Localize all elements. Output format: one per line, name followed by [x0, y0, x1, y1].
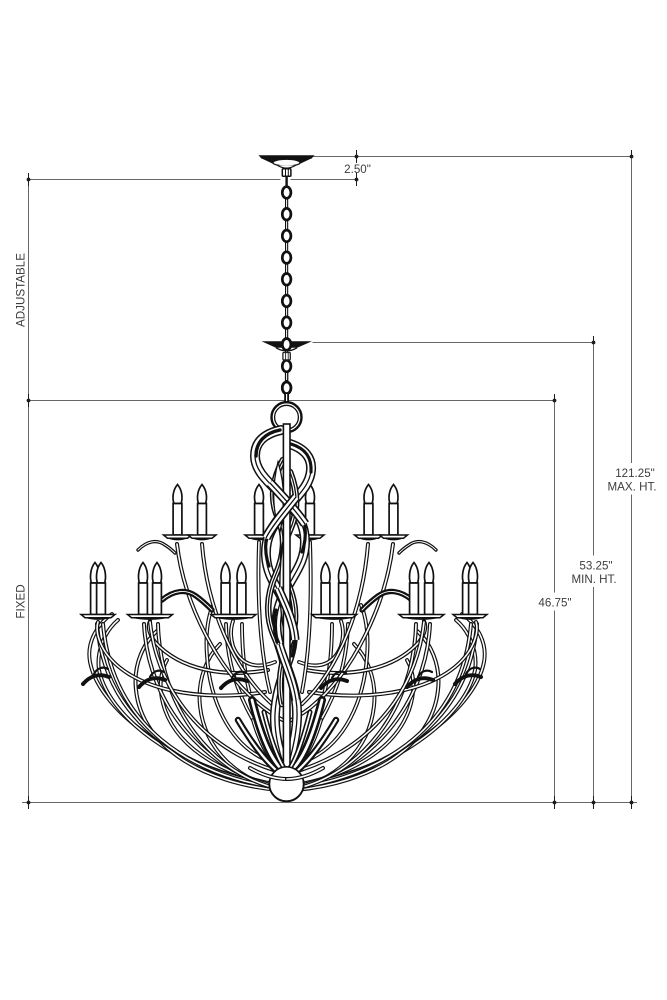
- svg-text:46.75": 46.75": [538, 597, 571, 610]
- svg-text:FIXED: FIXED: [15, 584, 28, 618]
- svg-text:121.25": 121.25": [615, 467, 655, 480]
- svg-text:MIN. HT.: MIN. HT.: [571, 573, 616, 586]
- svg-text:53.25": 53.25": [579, 560, 612, 573]
- svg-text:ADJUSTABLE: ADJUSTABLE: [15, 253, 28, 327]
- svg-text:2.50": 2.50": [344, 163, 371, 176]
- svg-text:MAX. HT.: MAX. HT.: [608, 481, 657, 494]
